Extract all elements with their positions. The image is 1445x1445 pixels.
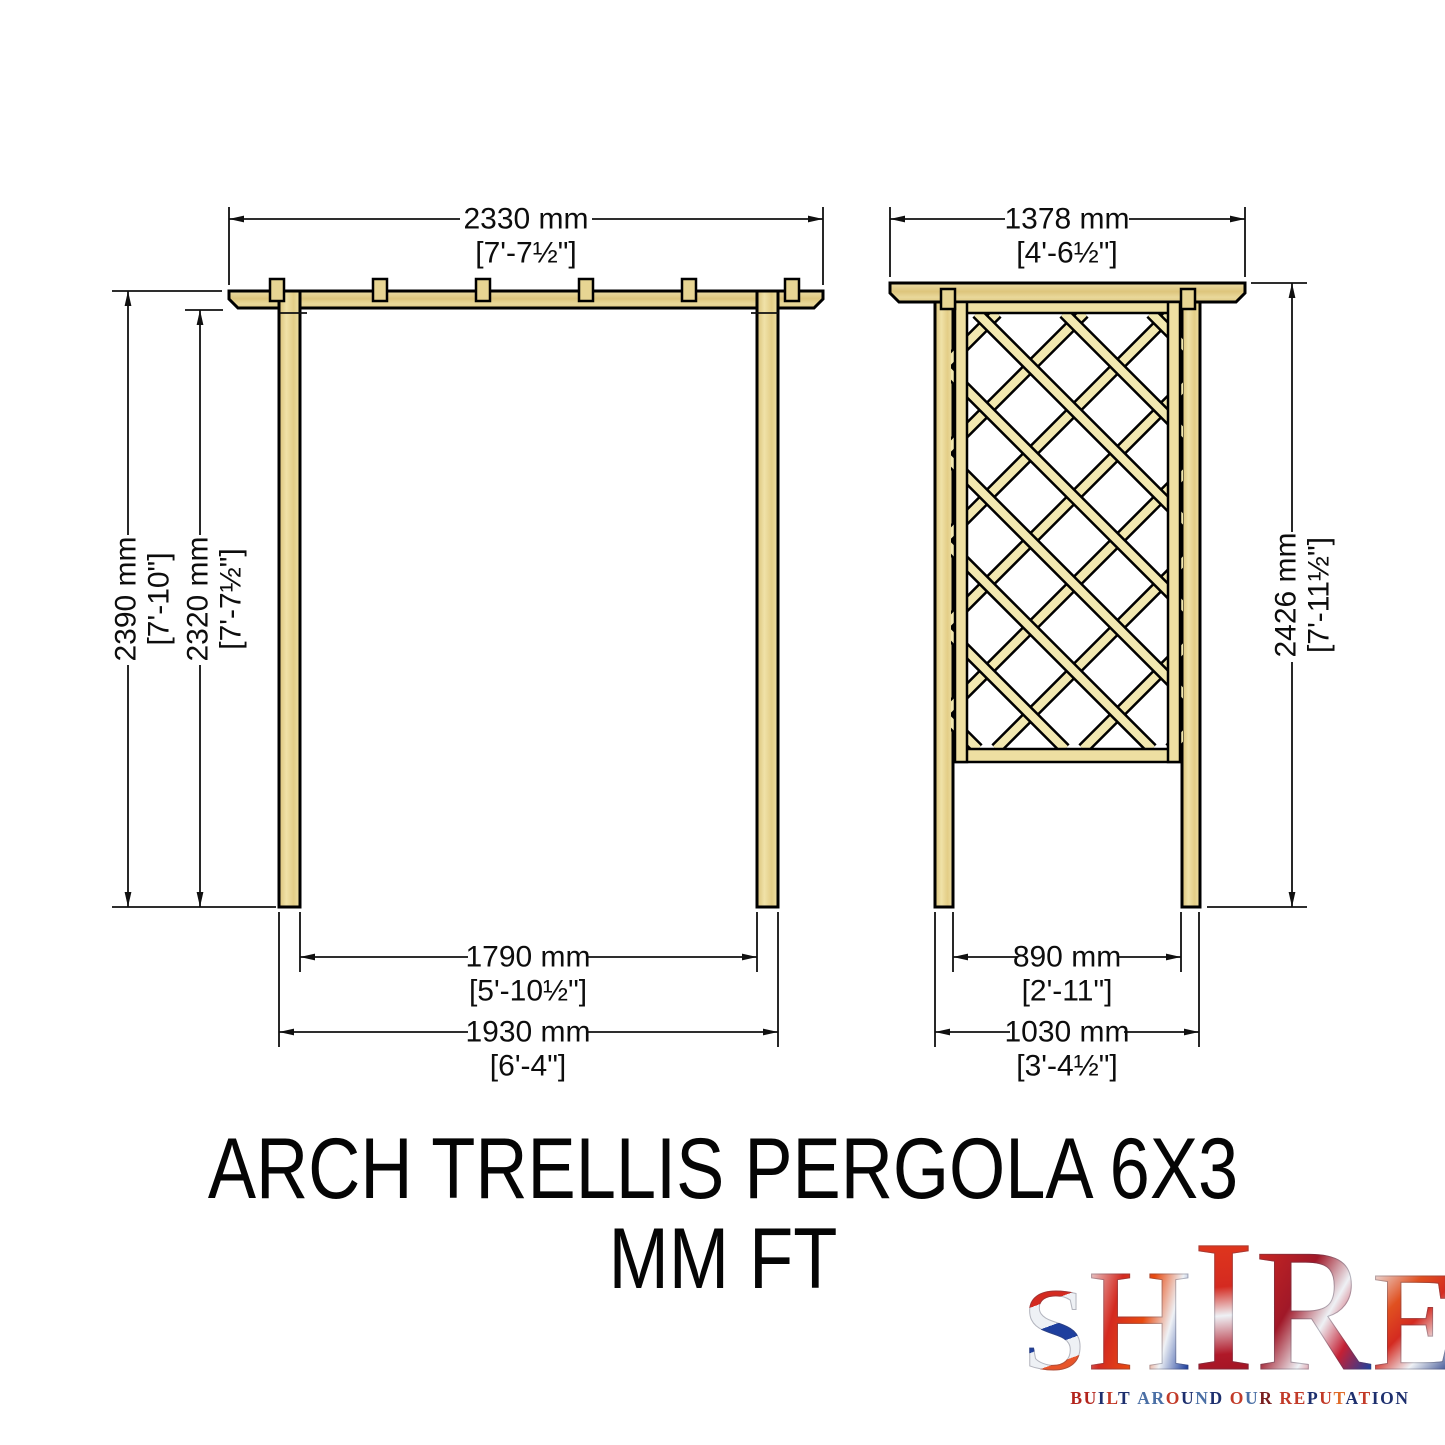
product-title: ARCH TRELLIS PERGOLA 6X3: [208, 1120, 1238, 1216]
dim-front-span-inner-ft: [5'-10½"]: [469, 975, 587, 1008]
tagline-letter: U: [1181, 1388, 1195, 1408]
dimensions-front: 2330 mm [7'-7½"] 2390 mm [7'-10"] 2320 m…: [110, 203, 824, 1083]
tagline-letter: N: [1195, 1388, 1209, 1408]
trellis-bottom-rail: [953, 749, 1182, 762]
dim-side-span-outer-ft: [3'-4½"]: [1016, 1050, 1117, 1083]
dim-front-span-outer-mm: 1930 mm: [465, 1016, 590, 1049]
dim-front-height-outer-ft: [7'-10"]: [143, 552, 176, 645]
tagline-letter: A: [1137, 1388, 1151, 1408]
logo-letter: E: [1371, 1250, 1445, 1392]
tagline-letter: A: [1345, 1388, 1358, 1408]
dim-front-span-outer-ft: [6'-4"]: [490, 1050, 566, 1083]
tagline-letter: L: [1106, 1388, 1118, 1408]
front-left-post: [279, 291, 300, 907]
tagline-letter: I: [1372, 1388, 1380, 1408]
tagline-letter: O: [1166, 1388, 1181, 1408]
side-tenon-left: [941, 289, 955, 309]
logo-letter: S: [1022, 1271, 1088, 1389]
trellis-top-rail: [953, 302, 1182, 313]
dim-front-height-inner-ft: [7'-7½"]: [215, 548, 248, 649]
trellis-left-rail: [955, 302, 967, 762]
logo-tagline: BUILT AROUND OUR REPUTATION: [1040, 1388, 1440, 1409]
tagline-letter: N: [1395, 1388, 1409, 1408]
front-view: [229, 279, 823, 907]
tagline-letter: R: [1152, 1388, 1166, 1408]
side-left-post: [935, 302, 953, 907]
trellis-lattice: [542, 313, 1445, 749]
dim-front-height-inner-mm: 2320 mm: [182, 536, 215, 661]
dim-front-height-outer-mm: 2390 mm: [110, 536, 143, 661]
tagline-letter: P: [1307, 1388, 1319, 1408]
dim-side-span-outer-mm: 1030 mm: [1004, 1016, 1129, 1049]
tagline-letter: D: [1209, 1388, 1223, 1408]
side-right-post: [1182, 302, 1200, 907]
logo-letter: I: [1192, 1212, 1255, 1400]
logo-letter: R: [1255, 1223, 1372, 1398]
logo-letter: H: [1087, 1249, 1192, 1394]
dim-side-height-mm: 2426 mm: [1270, 532, 1303, 657]
dim-front-top-width-ft: [7'-7½"]: [475, 237, 576, 270]
lattice-diagonal-down-outline: [542, 313, 1445, 749]
tagline-letter: R: [1279, 1388, 1293, 1408]
dim-side-span-inner-mm: 890 mm: [1013, 941, 1121, 974]
tagline-letter: O: [1380, 1388, 1395, 1408]
shire-logo: SHIRE: [1040, 1212, 1440, 1400]
front-top-beam: [229, 291, 823, 308]
tagline-letter: O: [1230, 1388, 1245, 1408]
tagline-letter: T: [1334, 1388, 1346, 1408]
dim-front-top-width-mm: 2330 mm: [463, 203, 588, 236]
dim-side-top-width-mm: 1378 mm: [1004, 203, 1129, 236]
tagline-letter: U: [1319, 1388, 1333, 1408]
tagline-letter: B: [1070, 1388, 1083, 1408]
tagline-letter: U: [1245, 1388, 1259, 1408]
front-right-post: [757, 291, 778, 907]
side-tenon-right: [1181, 289, 1195, 309]
tagline-letter: R: [1259, 1388, 1273, 1408]
trellis-right-rail: [1168, 302, 1180, 762]
tagline-letter: U: [1084, 1388, 1098, 1408]
units-subtitle: MM FT: [609, 1210, 838, 1306]
tagline-letter: T: [1358, 1388, 1371, 1408]
dim-side-top-width-ft: [4'-6½"]: [1016, 237, 1117, 270]
tagline-letter: E: [1294, 1388, 1307, 1408]
dim-side-span-inner-ft: [2'-11"]: [1022, 975, 1113, 1008]
dim-side-height-ft: [7'-11½"]: [1303, 537, 1336, 653]
product-dimension-sheet: 2330 mm [7'-7½"] 2390 mm [7'-10"] 2320 m…: [0, 0, 1445, 1445]
dim-front-span-inner-mm: 1790 mm: [465, 941, 590, 974]
tagline-letter: T: [1118, 1388, 1131, 1408]
